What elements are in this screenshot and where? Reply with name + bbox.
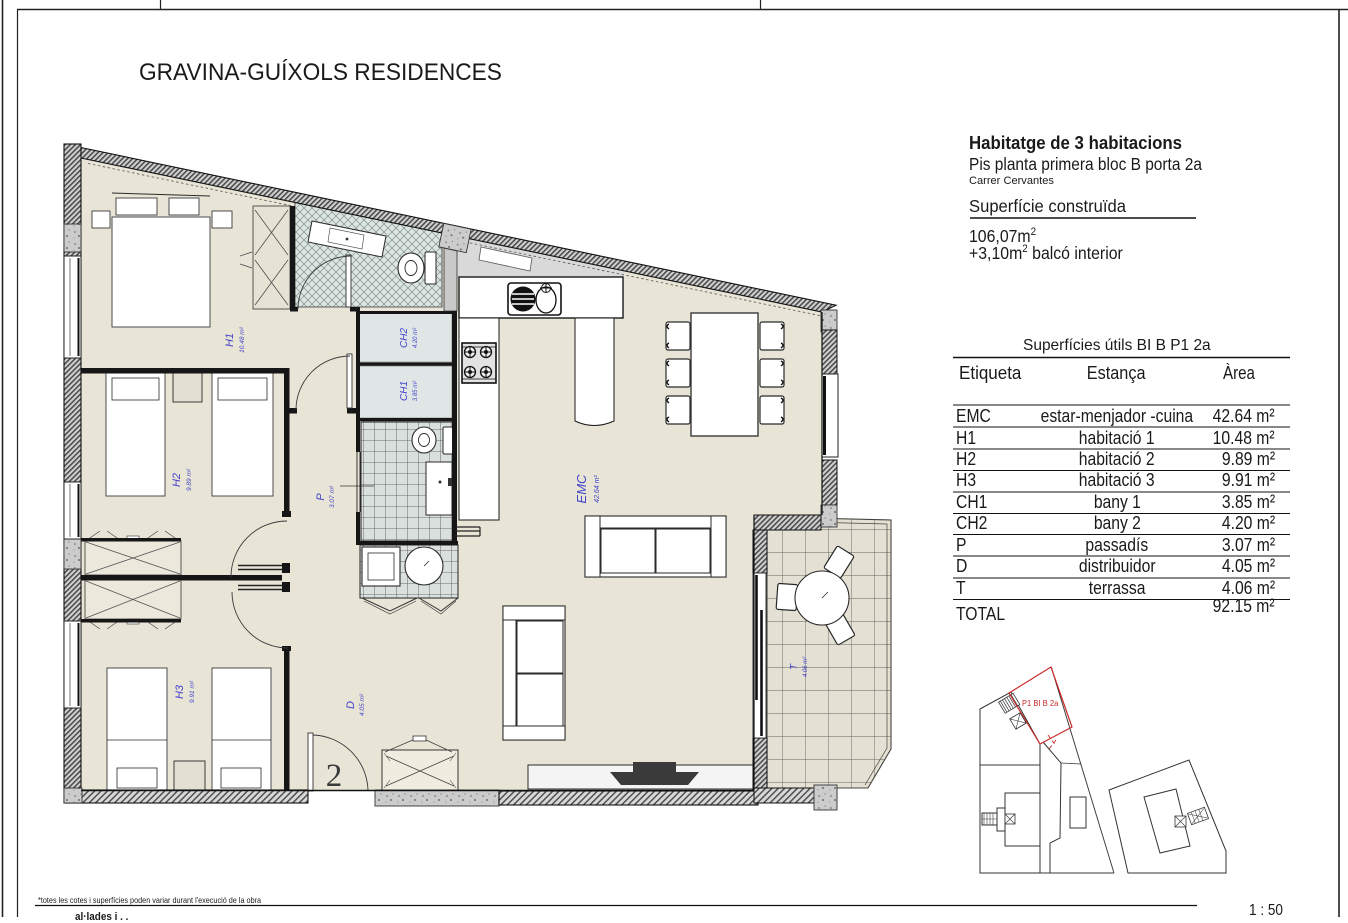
svg-text:H2: H2: [171, 473, 183, 487]
svg-text:4.05 m²: 4.05 m²: [359, 693, 366, 716]
svg-text:H3: H3: [174, 684, 186, 699]
svg-text:3.07 m²: 3.07 m²: [329, 485, 336, 508]
svg-text:EMC: EMC: [574, 474, 589, 504]
svg-text:P: P: [315, 493, 327, 501]
svg-text:9.91 m²: 9.91 m²: [189, 680, 196, 703]
svg-text:CH2: CH2: [399, 328, 410, 348]
svg-text:P1 BI B 2a: P1 BI B 2a: [1022, 699, 1059, 708]
svg-text:4.20 m²: 4.20 m²: [413, 327, 419, 348]
svg-text:4.06 m²: 4.06 m²: [803, 656, 809, 677]
svg-text:CH1: CH1: [399, 381, 410, 401]
svg-text:3.85 m²: 3.85 m²: [413, 380, 419, 401]
svg-text:H1: H1: [224, 333, 236, 347]
svg-text:D: D: [345, 701, 357, 709]
svg-text:42.64 m²: 42.64 m²: [594, 475, 601, 503]
svg-text:T: T: [789, 663, 800, 670]
svg-text:10.48 m²: 10.48 m²: [239, 326, 246, 352]
svg-text:2: 2: [326, 758, 343, 794]
svg-text:9.89 m²: 9.89 m²: [186, 468, 193, 491]
